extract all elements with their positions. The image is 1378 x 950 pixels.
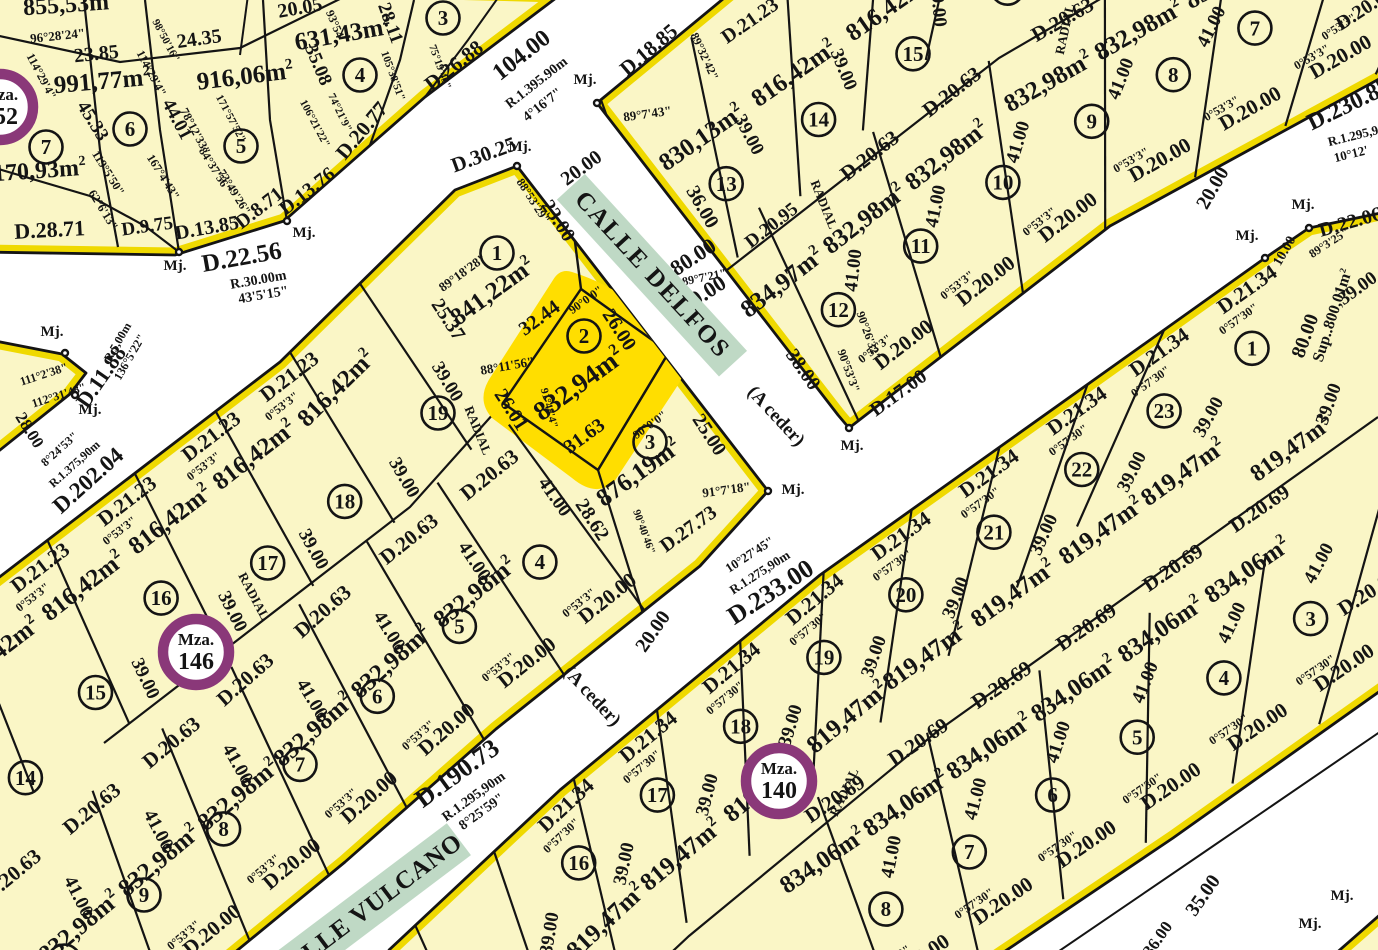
svg-text:9: 9 xyxy=(1086,110,1097,134)
svg-text:1: 1 xyxy=(1247,336,1258,360)
svg-text:39.00: 39.00 xyxy=(926,0,951,28)
svg-text:18: 18 xyxy=(730,714,751,738)
svg-text:17: 17 xyxy=(257,551,278,575)
svg-text:20: 20 xyxy=(895,583,916,607)
svg-text:Mj.: Mj. xyxy=(41,324,64,340)
svg-text:19: 19 xyxy=(428,401,449,425)
svg-text:15: 15 xyxy=(903,42,924,66)
svg-text:Mza.: Mza. xyxy=(178,630,214,649)
svg-text:Mj.: Mj. xyxy=(1292,197,1315,213)
svg-text:Mza.: Mza. xyxy=(0,85,18,104)
svg-text:1: 1 xyxy=(492,241,503,265)
svg-text:15: 15 xyxy=(85,681,106,705)
svg-text:Mj.: Mj. xyxy=(1299,916,1322,932)
svg-text:19: 19 xyxy=(813,646,834,670)
svg-text:21: 21 xyxy=(983,520,1004,544)
svg-text:3: 3 xyxy=(438,6,449,30)
svg-text:7: 7 xyxy=(41,135,52,159)
svg-text:6: 6 xyxy=(125,117,136,141)
svg-text:23: 23 xyxy=(1154,399,1175,423)
svg-text:6: 6 xyxy=(1047,783,1058,807)
svg-text:3: 3 xyxy=(1305,607,1316,631)
svg-text:16: 16 xyxy=(151,586,172,610)
svg-text:Mj.: Mj. xyxy=(293,225,316,241)
svg-text:4: 4 xyxy=(1219,666,1230,690)
svg-text:Mj.: Mj. xyxy=(782,482,805,498)
svg-text:14: 14 xyxy=(15,766,37,790)
svg-text:4: 4 xyxy=(355,63,366,87)
svg-text:10: 10 xyxy=(992,171,1013,195)
svg-text:2: 2 xyxy=(579,324,590,348)
svg-text:146: 146 xyxy=(178,649,214,675)
svg-text:Mj.: Mj. xyxy=(164,258,187,274)
svg-text:8: 8 xyxy=(881,897,892,921)
svg-text:Mj.: Mj. xyxy=(79,402,102,418)
svg-text:7: 7 xyxy=(1250,16,1261,40)
svg-text:Mza.: Mza. xyxy=(761,759,797,778)
svg-text:12: 12 xyxy=(828,298,849,322)
svg-text:11: 11 xyxy=(911,234,931,258)
svg-text:152: 152 xyxy=(0,104,18,130)
svg-text:13: 13 xyxy=(716,172,737,196)
svg-text:22: 22 xyxy=(1071,458,1092,482)
svg-text:7: 7 xyxy=(964,840,975,864)
svg-text:16: 16 xyxy=(568,851,589,875)
svg-text:Mj.: Mj. xyxy=(509,139,532,155)
svg-text:Mj.: Mj. xyxy=(841,438,864,454)
svg-text:Mj.: Mj. xyxy=(1331,888,1354,904)
svg-text:8: 8 xyxy=(1168,63,1179,87)
svg-text:23.85: 23.85 xyxy=(73,41,120,68)
svg-text:D.28.71: D.28.71 xyxy=(14,215,86,244)
svg-text:Mj.: Mj. xyxy=(1236,228,1259,244)
svg-text:4: 4 xyxy=(535,550,546,574)
svg-text:140: 140 xyxy=(761,778,797,804)
svg-text:14: 14 xyxy=(808,108,830,132)
svg-text:18: 18 xyxy=(334,490,355,514)
svg-text:Mj.: Mj. xyxy=(574,72,597,88)
svg-text:17: 17 xyxy=(647,783,668,807)
svg-text:5: 5 xyxy=(1132,725,1143,749)
